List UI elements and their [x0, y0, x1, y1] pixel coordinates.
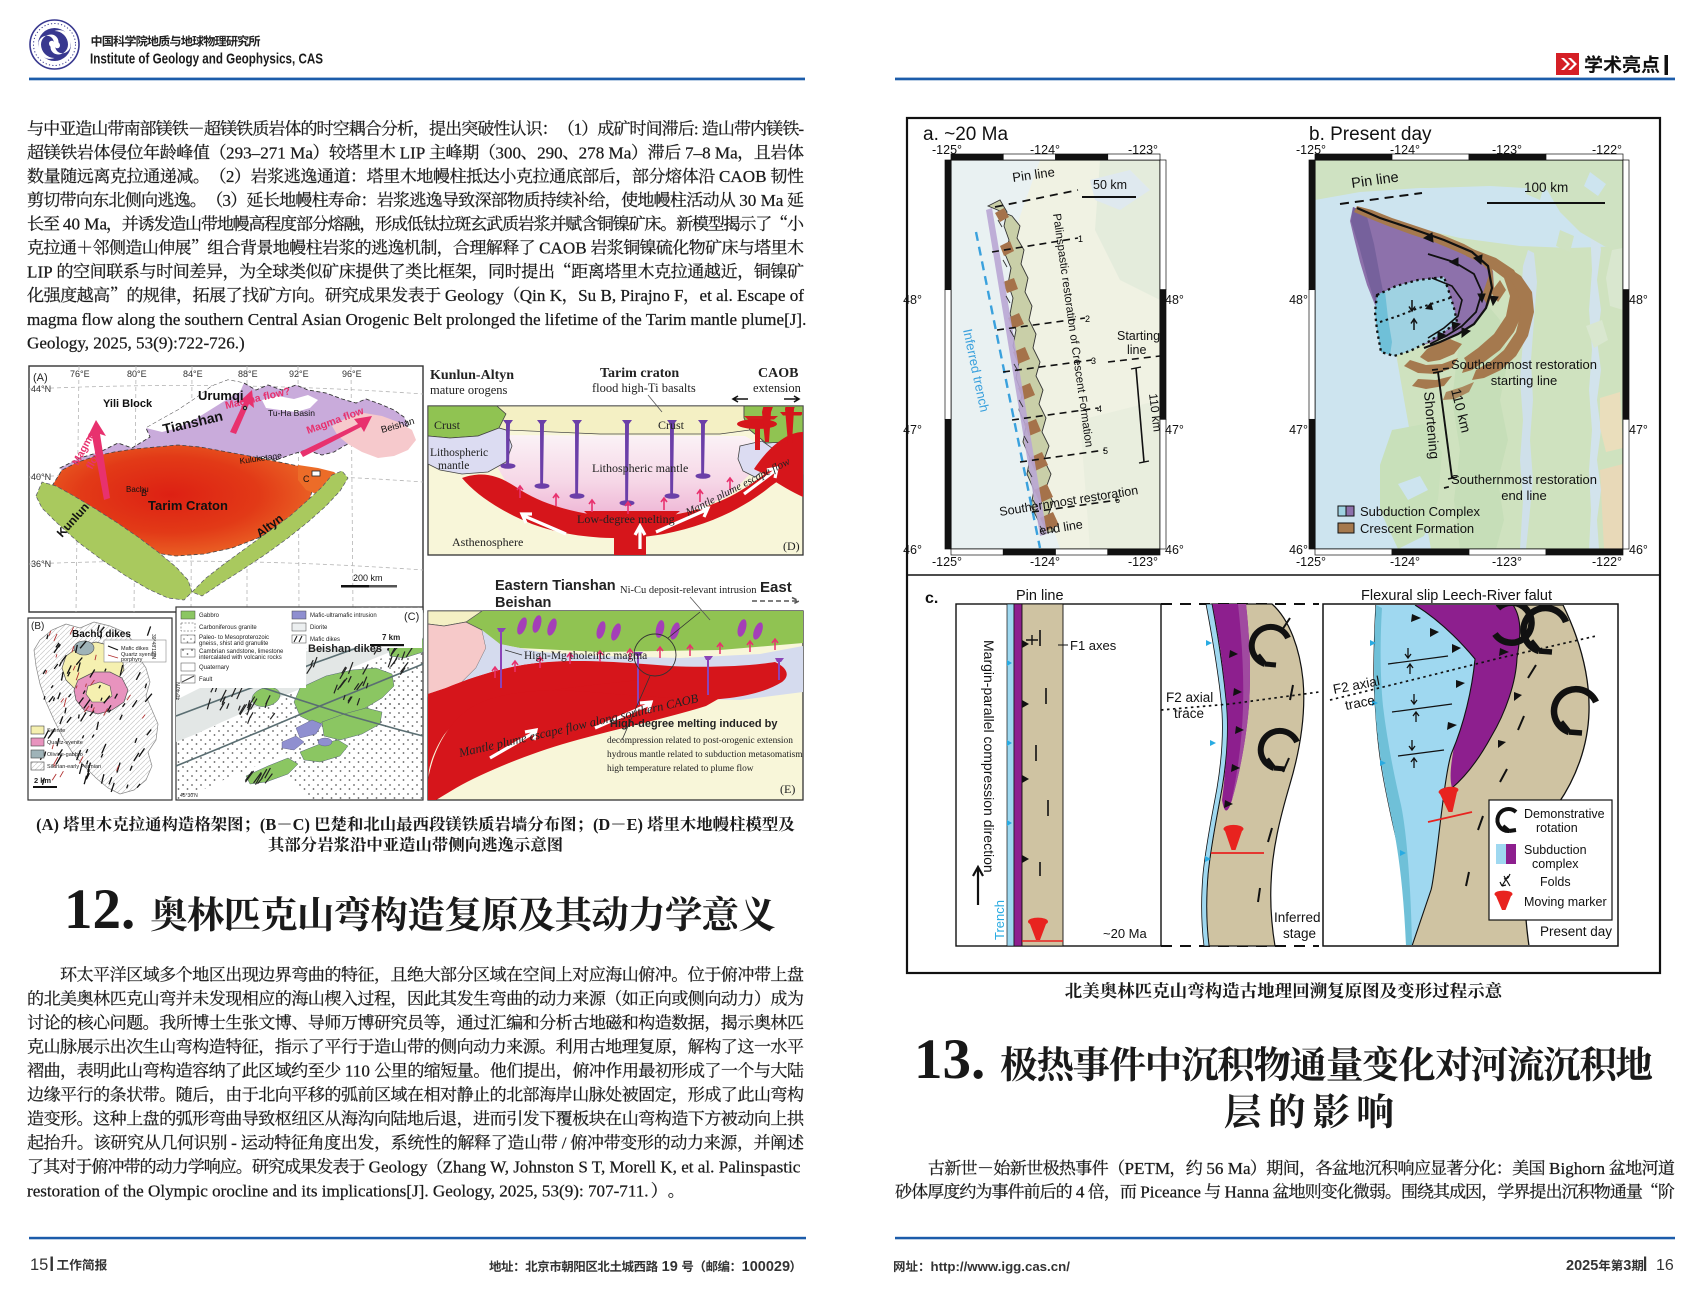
- svg-text:http://www.igg.cas.cn/: http://www.igg.cas.cn/: [931, 1259, 1071, 1274]
- svg-text:39°48'19"N: 39°48'19"N: [150, 634, 156, 659]
- svg-text:2 km: 2 km: [34, 776, 51, 785]
- svg-text:Geology: Geology: [445, 286, 504, 305]
- svg-text:flood high-Ti basalts: flood high-Ti basalts: [592, 381, 696, 395]
- svg-text:47°: 47°: [903, 423, 922, 437]
- svg-text:-: -: [231, 1134, 237, 1153]
- svg-text:200 km: 200 km: [353, 573, 383, 583]
- svg-text:48°: 48°: [1165, 293, 1184, 307]
- svg-text:2: 2: [226, 167, 235, 186]
- svg-text:et al. Escape of: et al. Escape of: [700, 286, 805, 305]
- svg-text:Moving marker: Moving marker: [1524, 895, 1607, 909]
- svg-text:1: 1: [574, 120, 583, 139]
- svg-text:-125°: -125°: [932, 143, 962, 157]
- svg-text:C: C: [303, 474, 310, 484]
- svg-text:Hanna: Hanna: [1225, 1183, 1270, 1202]
- svg-text:hydrous mantle related to subd: hydrous mantle related to subduction met…: [607, 750, 803, 760]
- svg-text:7 km: 7 km: [382, 633, 400, 642]
- svg-text:3: 3: [1091, 356, 1096, 366]
- svg-text:48°: 48°: [903, 293, 922, 307]
- svg-text:CAOB: CAOB: [539, 239, 587, 258]
- svg-text:2: 2: [1085, 314, 1090, 324]
- svg-text:46°: 46°: [1289, 543, 1308, 557]
- svg-text:Bighorn: Bighorn: [1549, 1159, 1605, 1178]
- svg-text:100029: 100029: [742, 1259, 790, 1275]
- svg-text:50 km: 50 km: [1093, 178, 1127, 192]
- svg-text:Southernmost restoration: Southernmost restoration: [1451, 472, 1597, 487]
- svg-text:Geology, 2025, 53(9):722-726.): Geology, 2025, 53(9):722-726.): [27, 334, 245, 353]
- svg-text:Lithospheric mantle: Lithospheric mantle: [592, 461, 688, 475]
- svg-text:-122°: -122°: [1592, 143, 1622, 157]
- svg-text:Asthenosphere: Asthenosphere: [452, 535, 523, 549]
- svg-text:30 Ma: 30 Ma: [739, 191, 784, 210]
- svg-text:B: B: [141, 488, 147, 498]
- svg-text:84°E: 84°E: [183, 369, 203, 379]
- svg-text:Olivine-gabbro: Olivine-gabbro: [47, 752, 83, 758]
- svg-text:Urumqi: Urumqi: [198, 388, 244, 403]
- svg-text:Gabbro: Gabbro: [199, 613, 220, 619]
- svg-text:magma flow along the southern: magma flow along the southern Central As…: [27, 310, 806, 329]
- svg-text:line: line: [1127, 343, 1147, 357]
- svg-text:(B: (B: [260, 815, 276, 834]
- svg-text:46°: 46°: [903, 543, 922, 557]
- svg-text:C): C): [293, 815, 310, 834]
- svg-text:Ni-Cu deposit-relevant intrusi: Ni-Cu deposit-relevant intrusion: [620, 585, 757, 596]
- svg-text:-124°: -124°: [1390, 555, 1420, 569]
- svg-text:Mafic-ultramafic intrusion: Mafic-ultramafic intrusion: [310, 613, 377, 619]
- svg-text:76°E: 76°E: [70, 369, 90, 379]
- svg-text:293–271 Ma: 293–271 Ma: [226, 143, 313, 162]
- svg-text:end line: end line: [1501, 488, 1547, 503]
- svg-text:Low-degree melting: Low-degree melting: [577, 512, 675, 526]
- svg-text:Starting: Starting: [1117, 329, 1160, 343]
- svg-text:(A): (A): [33, 372, 48, 384]
- svg-text:88°E: 88°E: [238, 369, 258, 379]
- svg-text:5: 5: [1103, 446, 1108, 456]
- svg-text:porphyry: porphyry: [121, 657, 143, 663]
- svg-text:stage: stage: [1283, 926, 1316, 941]
- svg-text:Trench: Trench: [992, 900, 1007, 940]
- svg-text:Tu-Ha Basin: Tu-Ha Basin: [268, 408, 315, 418]
- svg-text:high temperature related to pl: high temperature related to plume flow: [607, 763, 754, 774]
- svg-text:mature orogens: mature orogens: [430, 383, 508, 397]
- svg-text:(A): (A): [36, 815, 59, 834]
- svg-text:4: 4: [1097, 404, 1102, 414]
- svg-text:-123°: -123°: [1128, 555, 1158, 569]
- svg-text:7–8 Ma: 7–8 Ma: [685, 143, 738, 162]
- svg-text:(B): (B): [31, 621, 44, 632]
- svg-text:278 Ma: 278 Ma: [579, 143, 632, 162]
- svg-text:Present day: Present day: [1540, 924, 1612, 939]
- svg-text:Zhang W, Johnston S T, Morell: Zhang W, Johnston S T, Morell K, et al. …: [443, 1158, 801, 1177]
- svg-text:47°: 47°: [1289, 423, 1308, 437]
- svg-text:Flexural slip Leech-River falu: Flexural slip Leech-River falut: [1361, 588, 1552, 604]
- svg-text:Folds: Folds: [1540, 875, 1571, 889]
- svg-text:-125°: -125°: [932, 555, 962, 569]
- svg-text:3: 3: [222, 191, 231, 210]
- svg-text:Institute of Geology and Geoph: Institute of Geology and Geophysics, CAS: [90, 51, 323, 68]
- svg-text:Southernmost restoration: Southernmost restoration: [1451, 357, 1597, 372]
- svg-text:-124°: -124°: [1030, 555, 1060, 569]
- svg-text:LIP: LIP: [400, 143, 426, 162]
- svg-text:c.: c.: [925, 590, 938, 607]
- svg-text:Diorite: Diorite: [310, 625, 328, 631]
- svg-text:extension: extension: [753, 381, 802, 395]
- svg-text:100 km: 100 km: [1524, 180, 1568, 195]
- svg-text:3: 3: [1623, 1258, 1631, 1274]
- svg-text:47°: 47°: [1629, 423, 1648, 437]
- svg-text:High-degree melting induced by: High-degree melting induced by: [610, 718, 778, 730]
- svg-text:LIP: LIP: [27, 262, 53, 281]
- svg-text:46°: 46°: [1165, 543, 1184, 557]
- svg-text:E): E): [627, 815, 643, 834]
- svg-text:40°N: 40°N: [31, 472, 51, 482]
- svg-text:19: 19: [662, 1259, 678, 1275]
- svg-text:48°: 48°: [1629, 293, 1648, 307]
- svg-text:48°: 48°: [1289, 293, 1308, 307]
- svg-text:96°E: 96°E: [342, 369, 362, 379]
- svg-text:110: 110: [345, 1062, 370, 1081]
- svg-text:Subduction: Subduction: [1524, 843, 1587, 857]
- svg-text:80°E: 80°E: [127, 369, 147, 379]
- svg-text:-123°: -123°: [1128, 143, 1158, 157]
- svg-text:13.: 13.: [914, 1028, 985, 1091]
- svg-text:Crust: Crust: [658, 418, 685, 432]
- svg-text:Tarim craton: Tarim craton: [600, 366, 679, 381]
- svg-text:-125°: -125°: [1296, 555, 1326, 569]
- svg-text:40 Ma: 40 Ma: [63, 215, 108, 234]
- svg-text:Yili Block: Yili Block: [103, 398, 153, 410]
- svg-text:36°N: 36°N: [31, 559, 51, 569]
- svg-text:gneiss, shist and granulite: gneiss, shist and granulite: [199, 641, 269, 647]
- svg-text:decompression related to post-: decompression related to post-orogenic e…: [607, 736, 793, 746]
- svg-text:-: -: [798, 120, 804, 139]
- svg-text:Crust: Crust: [434, 418, 461, 432]
- svg-text:~20 Ma: ~20 Ma: [1103, 926, 1147, 941]
- svg-text:-124°: -124°: [1030, 143, 1060, 157]
- svg-text:Subduction Complex: Subduction Complex: [1360, 504, 1480, 519]
- svg-text:Piceance: Piceance: [1140, 1183, 1201, 1202]
- svg-text:mantle: mantle: [438, 460, 469, 472]
- svg-text:(D): (D): [783, 539, 800, 553]
- svg-text:1: 1: [1078, 234, 1083, 244]
- svg-text:46°: 46°: [1629, 543, 1648, 557]
- svg-text:starting line: starting line: [1491, 373, 1557, 388]
- svg-text:Crescent Formation: Crescent Formation: [1360, 521, 1474, 536]
- svg-text:trace: trace: [1174, 706, 1204, 721]
- svg-text:High-Mg tholeiitic magma: High-Mg tholeiitic magma: [524, 650, 647, 662]
- svg-text:16: 16: [1656, 1257, 1674, 1274]
- svg-text:Eastern Tianshan: Eastern Tianshan: [495, 578, 616, 594]
- svg-text:15: 15: [30, 1256, 48, 1274]
- svg-text:300: 300: [495, 143, 521, 162]
- svg-text:Syenite: Syenite: [47, 728, 65, 734]
- svg-text:F1 axes: F1 axes: [1070, 638, 1117, 653]
- svg-text:Inferred: Inferred: [1274, 910, 1321, 925]
- svg-text:-125°: -125°: [1296, 143, 1326, 157]
- svg-text:Geology: Geology: [369, 1158, 428, 1177]
- svg-text:Beishan: Beishan: [495, 595, 551, 611]
- svg-text:Quaternary: Quaternary: [199, 665, 229, 671]
- svg-text:CAOB: CAOB: [758, 366, 798, 381]
- svg-text:Fault: Fault: [199, 677, 213, 683]
- svg-text::: :: [694, 120, 699, 139]
- svg-text:East: East: [760, 579, 792, 596]
- svg-text:-124°: -124°: [1390, 143, 1420, 157]
- svg-text:92°E: 92°E: [289, 369, 309, 379]
- svg-text:44°N: 44°N: [31, 384, 51, 394]
- svg-text:Pin line: Pin line: [1016, 588, 1064, 604]
- svg-text:Carboniferous granite: Carboniferous granite: [199, 625, 257, 631]
- svg-text:a. ~20 Ma: a. ~20 Ma: [923, 124, 1008, 145]
- svg-text:56 Ma: 56 Ma: [1206, 1159, 1251, 1178]
- svg-text:PETM: PETM: [1124, 1159, 1170, 1178]
- svg-text:(D: (D: [593, 815, 610, 834]
- svg-text:Margin-parallel compression di: Margin-parallel compression direction: [981, 640, 997, 873]
- svg-text:(E): (E): [780, 782, 795, 796]
- svg-text:4: 4: [1076, 1183, 1085, 1202]
- svg-text:b. Present day: b. Present day: [1309, 124, 1432, 145]
- svg-text:-122°: -122°: [1592, 555, 1622, 569]
- svg-text:-123°: -123°: [1492, 143, 1522, 157]
- svg-text:F2 axial: F2 axial: [1166, 690, 1213, 705]
- svg-text:restoration of the Olympic oro: restoration of the Olympic orocline and …: [27, 1182, 649, 1201]
- svg-text:Quartz-syenite: Quartz-syenite: [47, 740, 83, 746]
- svg-text:12.: 12.: [64, 878, 135, 941]
- svg-text:Demonstrative: Demonstrative: [1524, 807, 1605, 821]
- svg-text:Lithospheric: Lithospheric: [430, 447, 488, 459]
- svg-text:Silurian-early Permian: Silurian-early Permian: [47, 764, 101, 770]
- svg-text:CAOB: CAOB: [719, 167, 766, 186]
- svg-text:intercalated with volcanic roc: intercalated with volcanic rocks: [199, 655, 282, 661]
- svg-text:Kunlun-Altyn: Kunlun-Altyn: [430, 368, 514, 383]
- svg-text:47°: 47°: [1165, 423, 1184, 437]
- svg-text:Tarim Craton: Tarim Craton: [148, 498, 228, 513]
- svg-text:2025: 2025: [1566, 1258, 1598, 1274]
- svg-text:Su B, Pirajno F: Su B, Pirajno F: [578, 286, 683, 305]
- svg-text:290: 290: [537, 143, 563, 162]
- svg-text:(C): (C): [404, 611, 419, 623]
- svg-text:40°40'N: 40°40'N: [176, 682, 182, 700]
- svg-text:Qin K: Qin K: [520, 286, 563, 305]
- svg-text:rotation: rotation: [1536, 821, 1578, 835]
- svg-text:-123°: -123°: [1492, 555, 1522, 569]
- svg-text:/: /: [562, 1134, 567, 1153]
- svg-text:45°30'N: 45°30'N: [180, 793, 198, 799]
- svg-text:complex: complex: [1532, 857, 1579, 871]
